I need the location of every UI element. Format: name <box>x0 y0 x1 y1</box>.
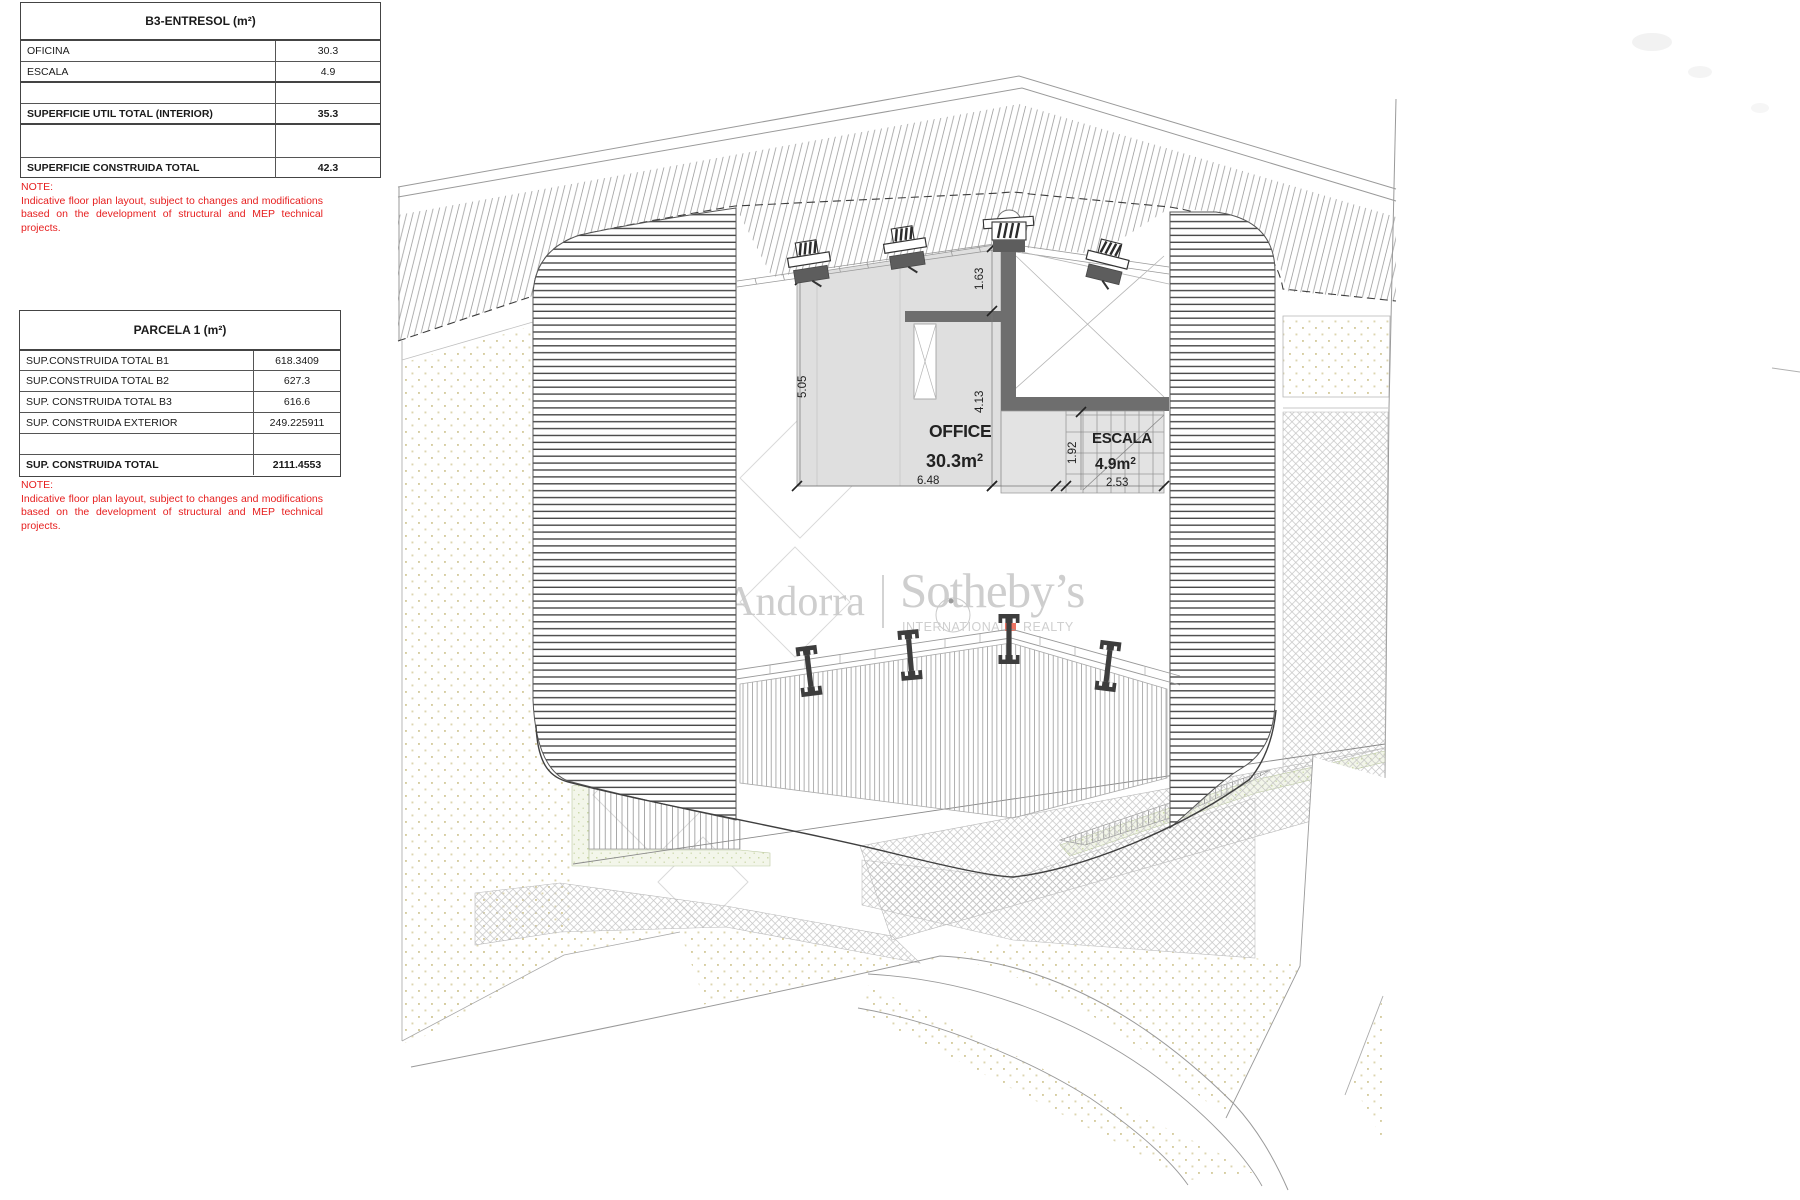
svg-text:1.92: 1.92 <box>1067 442 1079 464</box>
svg-text:30.3m2: 30.3m2 <box>926 451 983 471</box>
svg-text:2.53: 2.53 <box>1106 477 1128 489</box>
svg-text:OFFICE: OFFICE <box>929 421 991 441</box>
svg-text:Andorra: Andorra <box>725 579 865 625</box>
svg-text:1.63: 1.63 <box>974 268 986 290</box>
svg-text:5.05: 5.05 <box>797 376 809 398</box>
svg-text:ESCALA: ESCALA <box>1092 430 1152 447</box>
svg-text:4.13: 4.13 <box>974 391 986 413</box>
svg-text:6.48: 6.48 <box>917 475 939 487</box>
svg-text:Sotheby’s: Sotheby’s <box>900 563 1084 618</box>
svg-text:REALTY: REALTY <box>1023 620 1074 634</box>
svg-text:4.9m2: 4.9m2 <box>1095 456 1136 473</box>
